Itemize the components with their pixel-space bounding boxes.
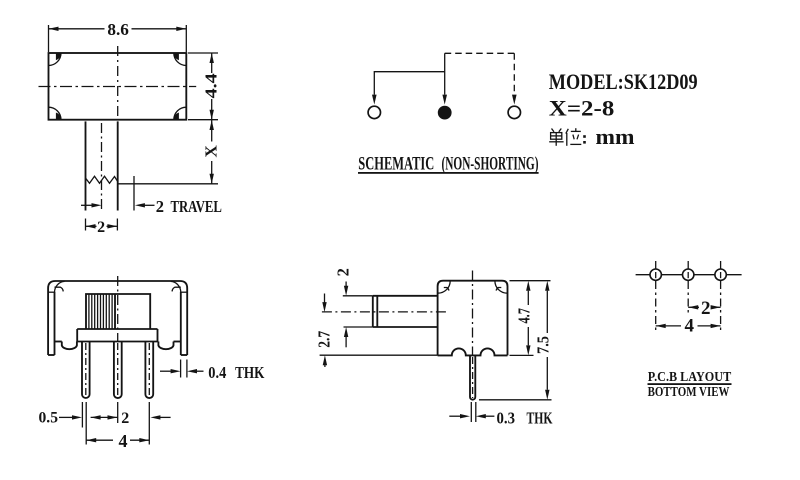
- svg-text:SCHEMATIC: SCHEMATIC: [358, 155, 434, 175]
- svg-text:8.6: 8.6: [107, 20, 129, 39]
- svg-text:0.3: 0.3: [497, 408, 516, 427]
- svg-text:TRAVEL: TRAVEL: [171, 197, 222, 216]
- svg-text:P.C.B LAYOUT: P.C.B LAYOUT: [648, 369, 731, 384]
- svg-text:4.4: 4.4: [201, 73, 220, 99]
- svg-text:4: 4: [685, 315, 695, 336]
- svg-text:mm: mm: [596, 124, 635, 149]
- svg-text:BOTTOM VIEW: BOTTOM VIEW: [648, 384, 730, 399]
- svg-text:4: 4: [119, 431, 128, 451]
- svg-text:2: 2: [121, 410, 129, 427]
- svg-text:X: X: [201, 144, 220, 157]
- svg-text:2: 2: [701, 298, 711, 319]
- svg-text:0.5: 0.5: [39, 410, 59, 427]
- svg-text:(NON-SHORTING): (NON-SHORTING): [442, 155, 539, 175]
- svg-text:2.7: 2.7: [314, 331, 333, 348]
- svg-text:MODEL:SK12D09: MODEL:SK12D09: [549, 69, 698, 94]
- svg-text:7.5: 7.5: [534, 336, 553, 354]
- svg-text:X=2-8: X=2-8: [549, 95, 615, 120]
- svg-text:2: 2: [334, 268, 353, 276]
- svg-text:2: 2: [97, 219, 105, 236]
- svg-text:2: 2: [156, 197, 164, 216]
- svg-text:THK: THK: [235, 363, 265, 382]
- svg-text:4.7: 4.7: [515, 308, 534, 324]
- svg-text:THK: THK: [527, 408, 554, 427]
- svg-text:0.4: 0.4: [208, 363, 226, 382]
